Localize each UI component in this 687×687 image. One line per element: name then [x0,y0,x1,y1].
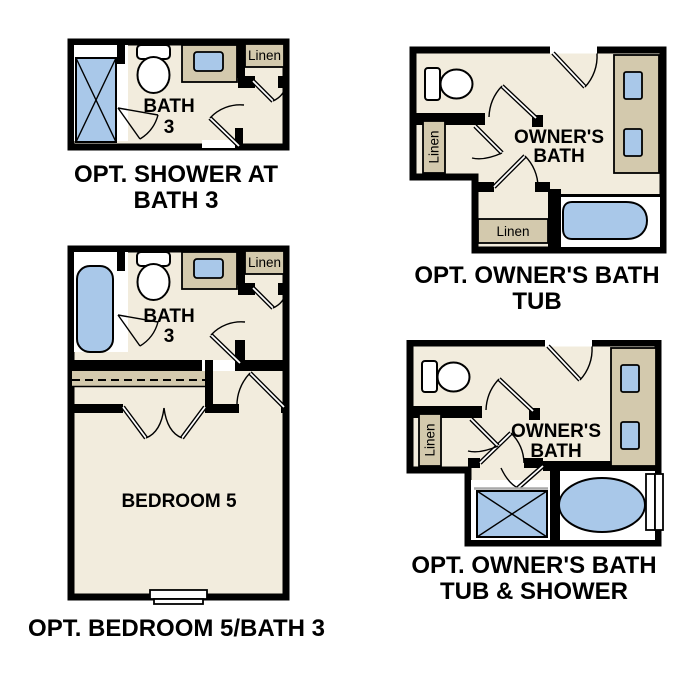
room-label-owners-bath-line1: OWNER'S [511,421,601,442]
toilet [425,68,473,100]
caption-line: BATH 3 [26,188,326,214]
double-vanity [614,55,659,173]
room-label-bath3-line2: 3 [164,326,175,347]
linen-closet-side: Linen [423,121,445,173]
caption-owners-bath-tub: OPT. OWNER'S BATH TUB [387,263,687,315]
toilet [137,252,170,300]
window [150,590,207,604]
door-opening [545,340,592,347]
caption-line: OPT. OWNER'S BATH [387,263,687,289]
linen-closet-bottom: Linen [478,219,548,243]
sink [621,422,639,449]
room-label-owners-bath-line2: BATH [533,146,584,167]
closet-wall [72,404,123,413]
plan-owners-bath-tub-drawing: Linen Linen [405,45,670,257]
sink [624,129,642,156]
room-label-bath3-line1: BATH [143,96,194,117]
door-opening [202,140,235,148]
linen-closet-side: Linen [419,414,441,466]
plan-owners-bath-tub-shower: Linen OWNER'S BATH [402,340,667,557]
bathtub [77,266,113,352]
vanity [182,45,237,82]
linen-closet-label: Linen [248,48,281,63]
plan-bedroom5-bath3-drawing: Linen BATH 3 [62,240,297,610]
floorplan-sheet: Linen BATH 3 OPT. SHOWER AT BATH 3 [0,0,687,687]
hall-wall [213,404,239,413]
linen-closet-label: Linen [427,130,442,163]
caption-line: OPT. OWNER'S BATH [384,553,684,579]
caption-owners-bath-tub-shower: OPT. OWNER'S BATH TUB & SHOWER [384,553,684,605]
interior-wall [205,360,213,413]
interior-wall [548,189,561,247]
shower [76,58,116,142]
sink [624,72,642,99]
bathtub [563,202,647,239]
bath-bottom-wall [71,360,286,371]
sink [194,52,223,71]
door-jamb [235,128,243,150]
double-vanity [611,348,656,466]
door-opening [550,46,597,54]
toilet [422,361,470,392]
caption-line: TUB [387,289,687,315]
shower [477,491,547,537]
caption-line: OPT. BEDROOM 5/BATH 3 [11,616,342,642]
sink [621,365,639,392]
room-label-bedroom5: BEDROOM 5 [121,491,237,512]
linen-closet-label: Linen [423,423,438,456]
plan-bedroom5-bath3: Linen BATH 3 [62,240,297,615]
room-label-owners-bath-line2: BATH [530,441,581,462]
toilet [137,45,170,93]
wall-stub [117,42,125,64]
caption-bath3-shower: OPT. SHOWER AT BATH 3 [26,162,326,214]
interior-wall [478,182,494,192]
vanity [182,252,237,289]
linen-closet-label: Linen [496,224,529,239]
plan-bath3-shower: Linen BATH 3 [62,30,297,165]
linen-closet: Linen [245,251,284,274]
linen-closet-label: Linen [248,255,281,270]
interior-wall [237,42,245,78]
room-label-bath3-line2: 3 [164,117,175,138]
sink [194,259,223,278]
wall-stub [117,249,125,271]
oval-bathtub [559,478,645,532]
caption-line: TUB & SHOWER [384,579,684,605]
plan-owners-bath-tub: Linen Linen [405,45,670,262]
wall-stub [278,283,289,295]
room-label-owners-bath-line1: OWNER'S [514,127,604,148]
closet-shelf [72,371,205,387]
caption-line: OPT. SHOWER AT [26,162,326,188]
plan-owners-bath-tub-shower-drawing: Linen OWNER'S BATH [402,340,667,552]
room-label-bath3-line1: BATH [143,306,194,327]
wall-stub [278,76,289,88]
interior-wall [468,458,480,468]
linen-closet: Linen [245,44,284,67]
caption-bedroom5-bath3: OPT. BEDROOM 5/BATH 3 [11,616,342,642]
window [646,474,663,530]
plan-bath3-shower-drawing: Linen BATH 3 [62,30,297,160]
interior-wall [237,249,245,285]
